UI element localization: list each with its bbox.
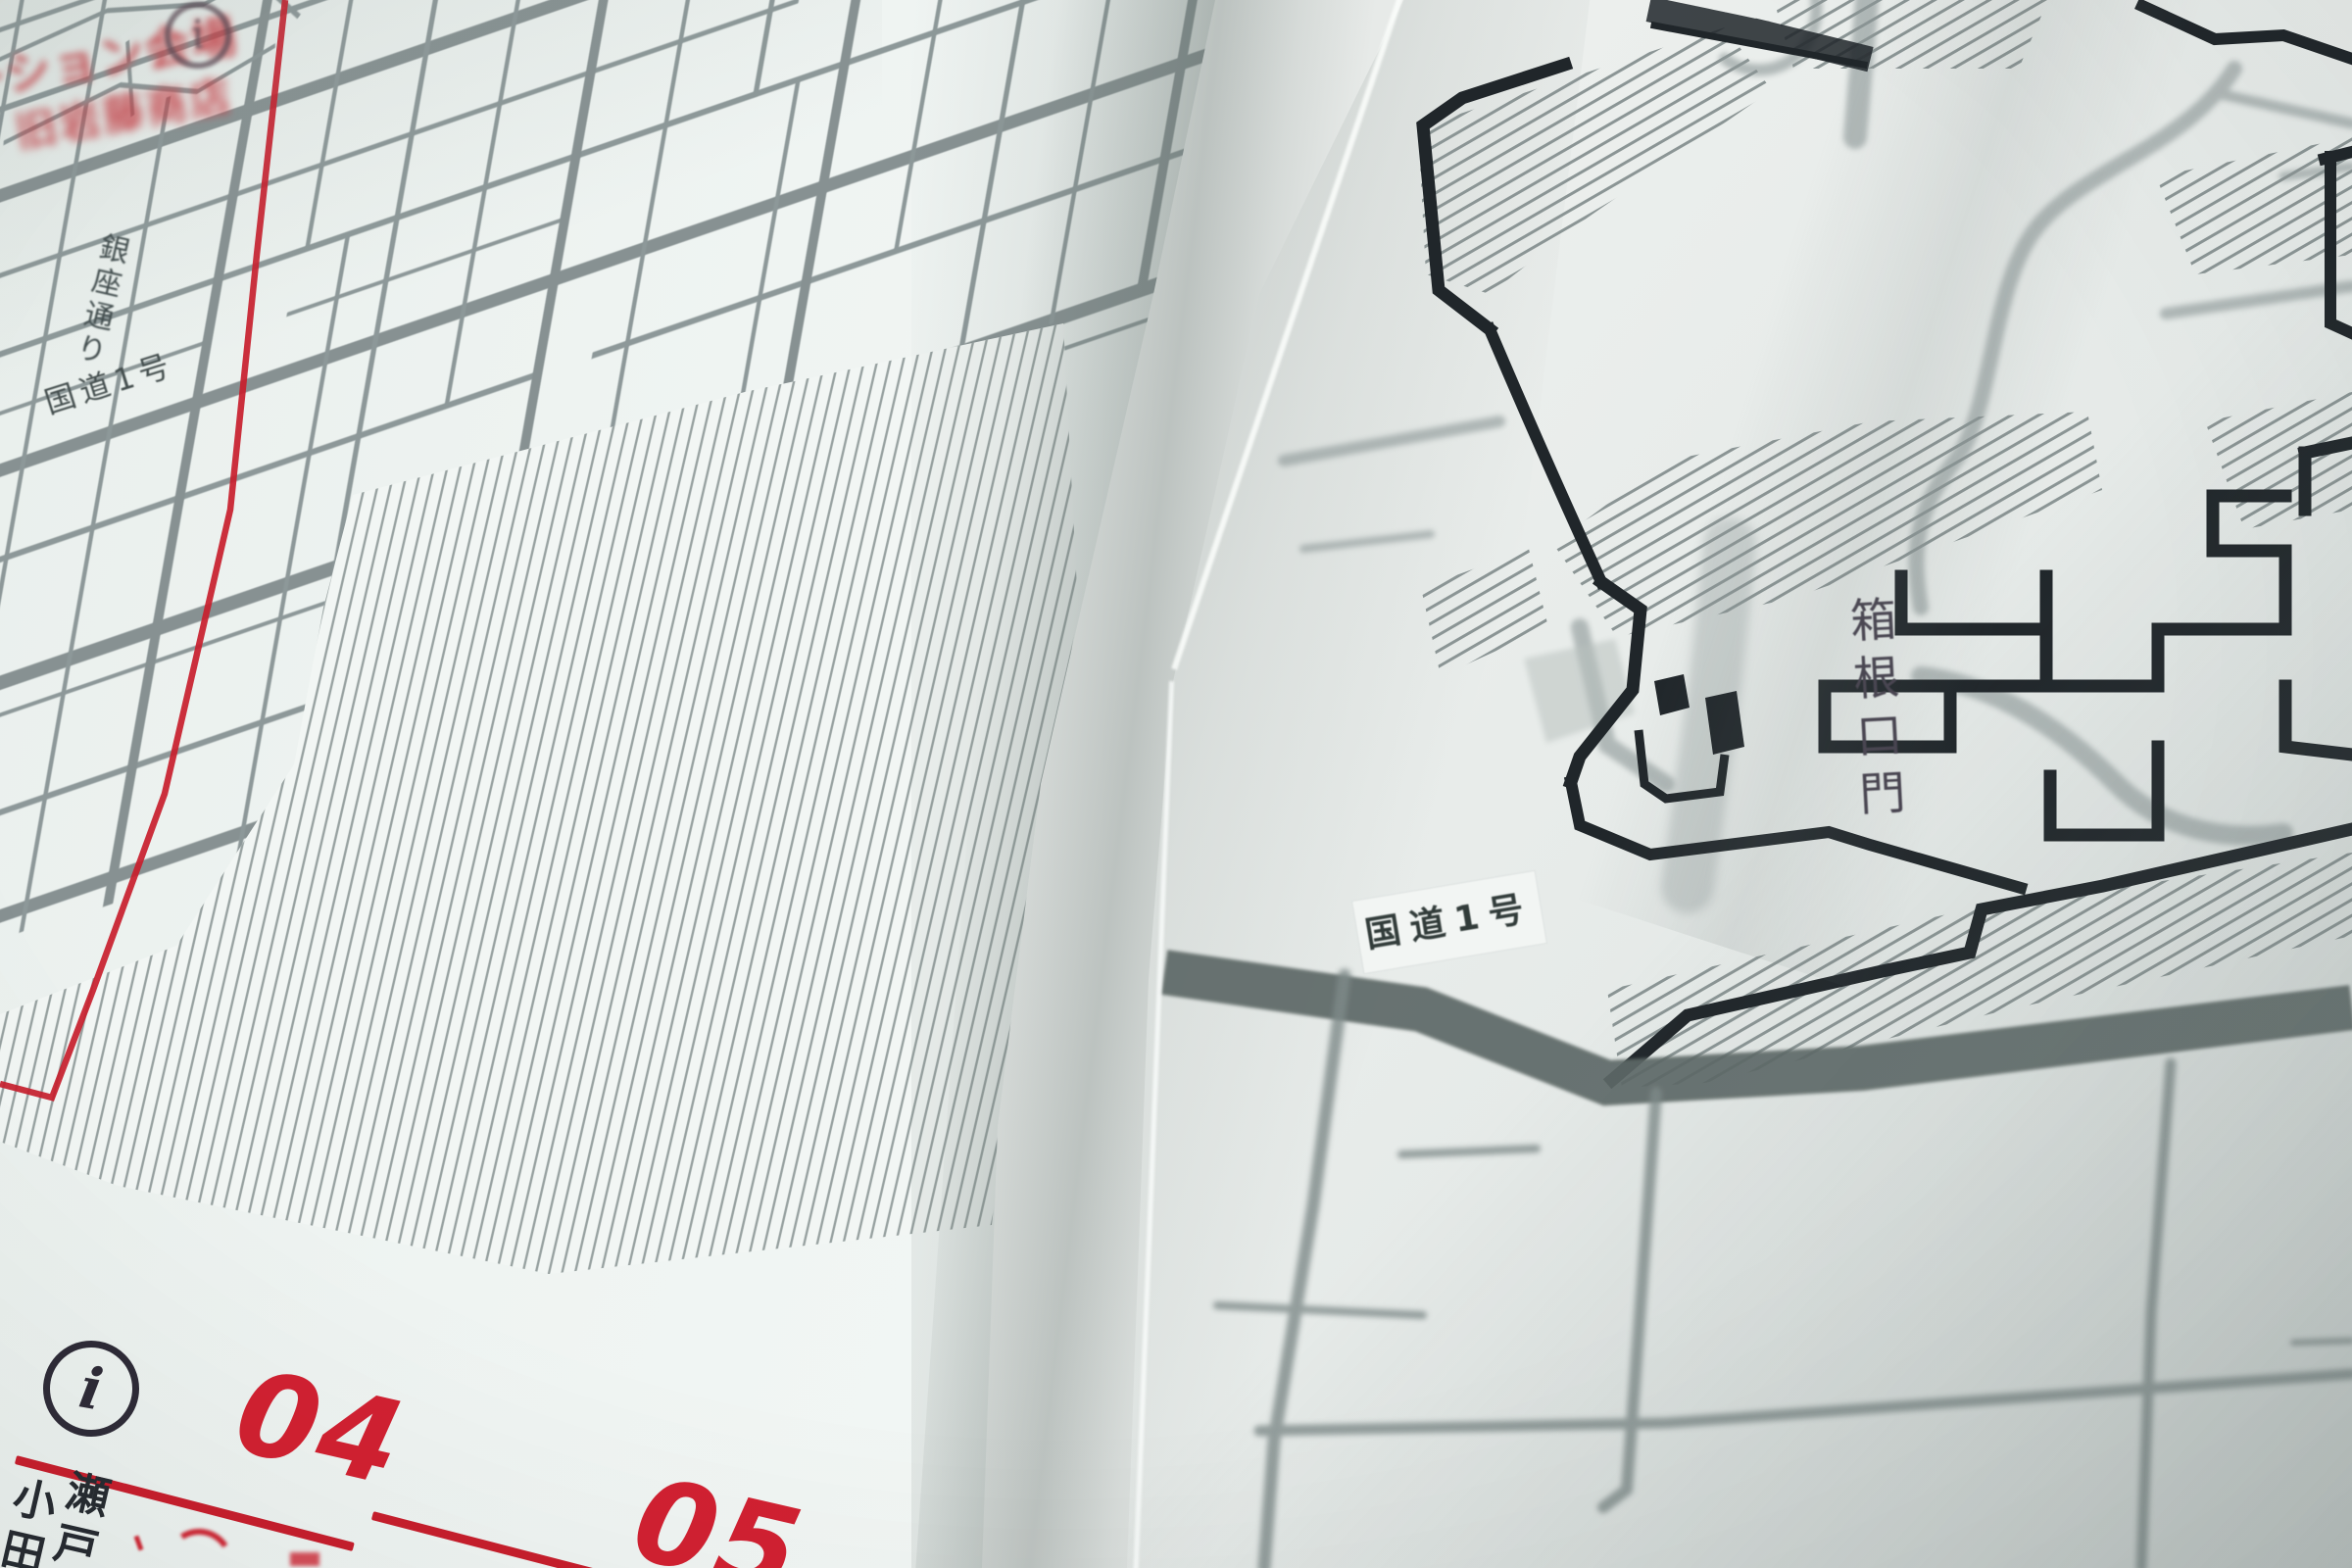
info-icon-glyph: i bbox=[188, 12, 209, 59]
route1-label-right: 国道1号 bbox=[1363, 891, 1537, 954]
red-mark-fragment-2 bbox=[290, 1552, 319, 1566]
footer-info-icon-glyph: i bbox=[74, 1354, 108, 1424]
photo-of-printed-maps: ーション会場 旧岩藤商店 i 銀座通り 国道1号 i 04 05 小田 瀬戸 bbox=[0, 0, 2352, 1568]
gate-name-label: 箱根口門 bbox=[1844, 595, 1902, 828]
